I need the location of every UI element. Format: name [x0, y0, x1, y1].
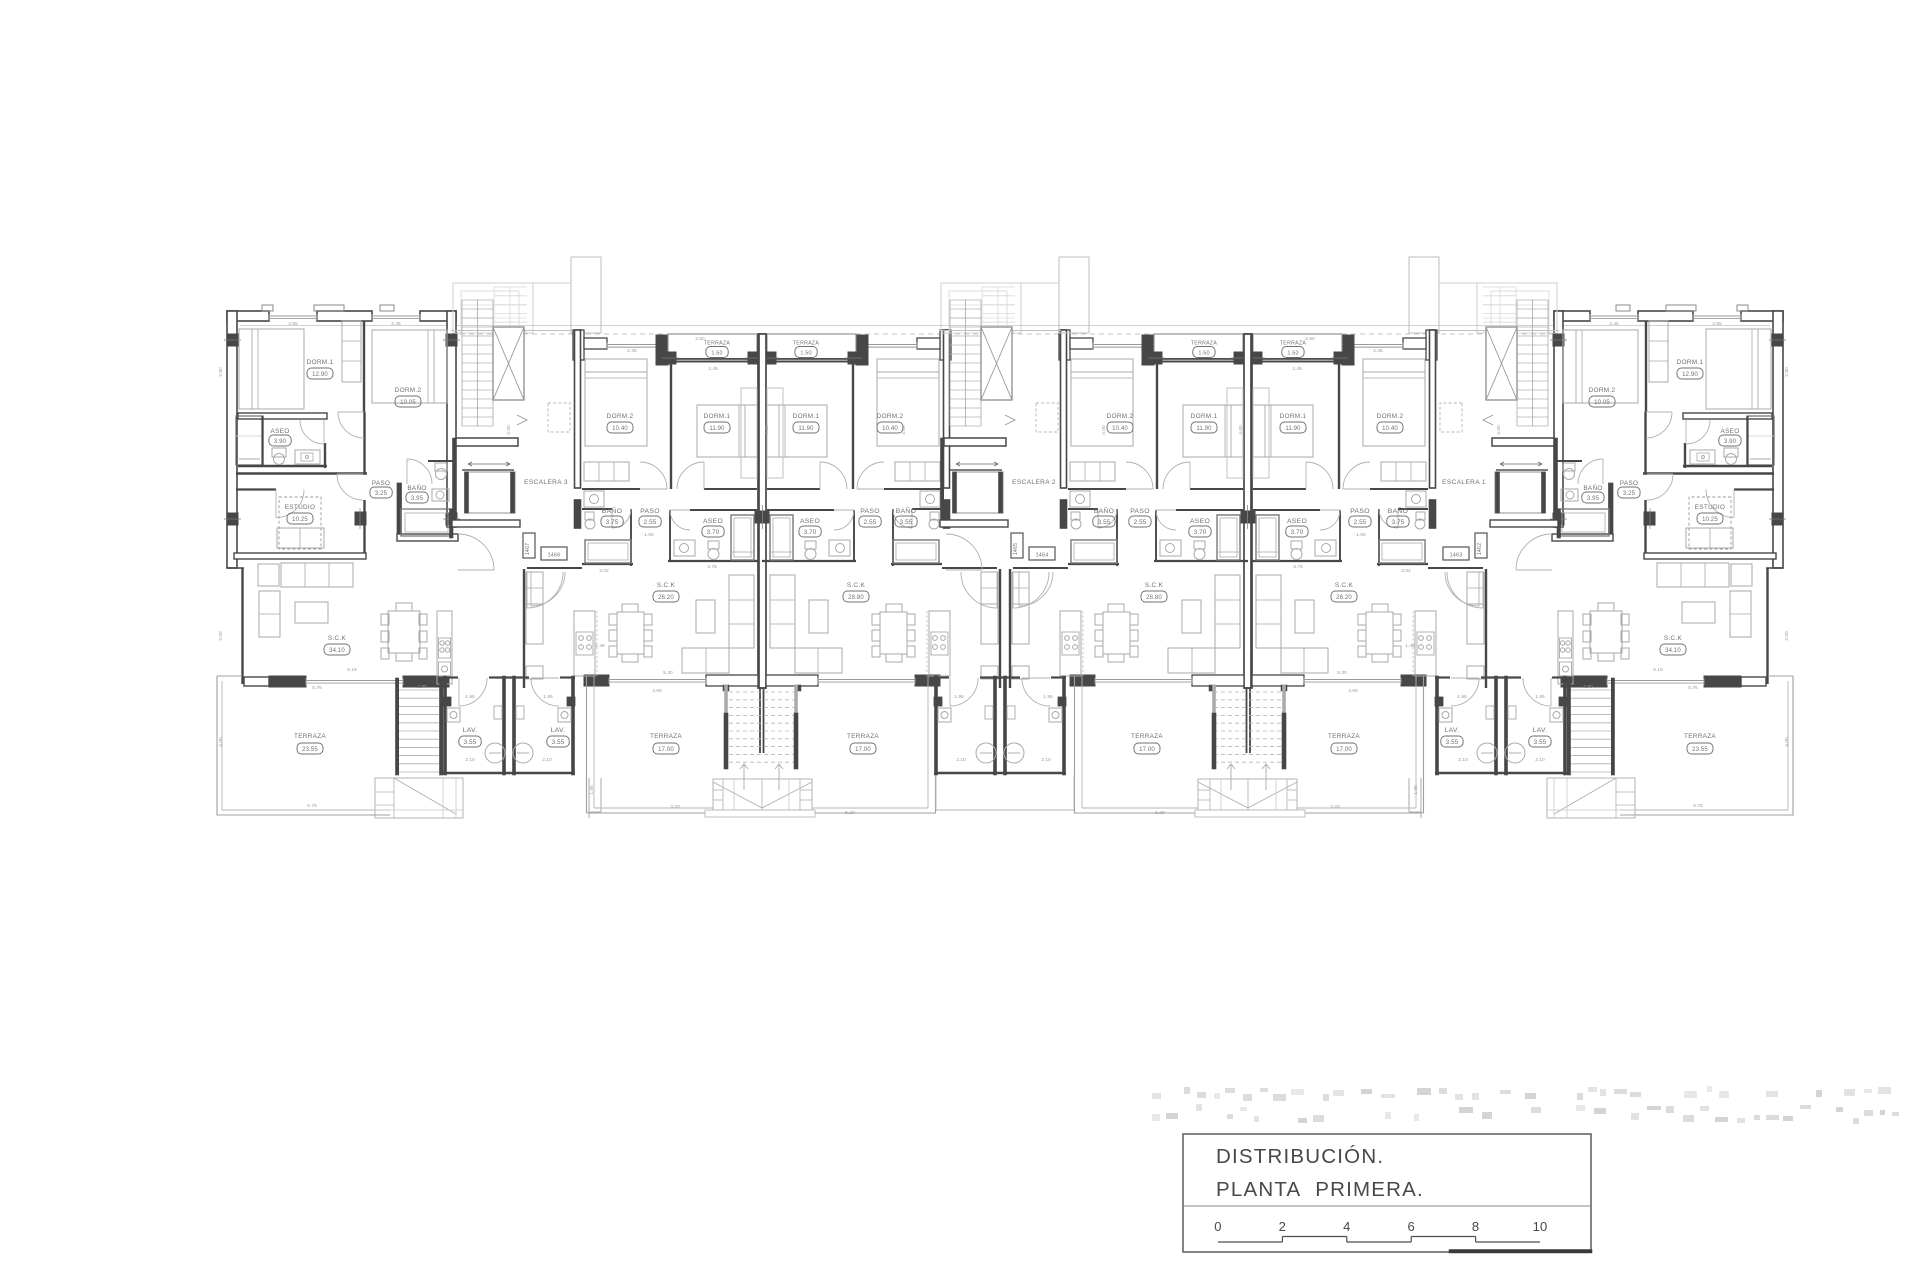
- svg-text:4: 4: [1343, 1219, 1350, 1234]
- svg-text:5.30: 5.30: [663, 670, 673, 676]
- svg-text:2.55: 2.55: [644, 519, 657, 526]
- svg-text:10.05: 10.05: [400, 400, 416, 406]
- svg-text:3.00: 3.00: [1784, 631, 1790, 641]
- svg-text:8: 8: [1472, 1219, 1479, 1234]
- svg-text:2.80: 2.80: [1784, 367, 1790, 377]
- svg-text:2: 2: [1279, 1219, 1286, 1234]
- svg-text:3.65: 3.65: [288, 321, 298, 327]
- svg-text:10.05: 10.05: [1594, 400, 1610, 406]
- svg-text:DORM.2: DORM.2: [395, 387, 422, 394]
- svg-text:34.10: 34.10: [329, 648, 345, 654]
- svg-text:ESTUDIO: ESTUDIO: [285, 504, 316, 511]
- svg-text:5.75: 5.75: [1688, 685, 1698, 691]
- svg-text:TERRAZA: TERRAZA: [1280, 341, 1307, 347]
- svg-text:3.95: 3.95: [411, 496, 424, 502]
- svg-text:4.00: 4.00: [1348, 688, 1358, 694]
- svg-text:1.05: 1.05: [589, 785, 595, 795]
- svg-text:TERRAZA: TERRAZA: [1684, 733, 1716, 740]
- svg-text:1.48: 1.48: [595, 643, 605, 649]
- svg-text:DORM.1: DORM.1: [307, 359, 334, 366]
- svg-text:0: 0: [1214, 1219, 1221, 1234]
- svg-text:1467: 1467: [525, 543, 531, 555]
- svg-text:BAÑO: BAÑO: [1094, 506, 1114, 515]
- svg-text:2.45: 2.45: [1292, 366, 1302, 372]
- svg-text:1.95: 1.95: [1535, 694, 1545, 700]
- svg-text:3.75: 3.75: [1392, 519, 1405, 526]
- svg-text:BAÑO: BAÑO: [602, 506, 622, 515]
- svg-text:11.90: 11.90: [709, 426, 725, 432]
- svg-text:BAÑO: BAÑO: [1583, 483, 1602, 492]
- svg-text:TERRAZA: TERRAZA: [1191, 341, 1218, 347]
- svg-text:6.19: 6.19: [347, 667, 357, 673]
- svg-text:PASO: PASO: [1620, 480, 1638, 487]
- svg-text:1465: 1465: [1013, 543, 1019, 555]
- svg-text:1.05: 1.05: [1413, 785, 1419, 795]
- svg-text:10.40: 10.40: [1382, 426, 1398, 432]
- svg-text:3.02: 3.02: [1401, 568, 1411, 574]
- svg-text:3.20: 3.20: [670, 804, 680, 810]
- svg-text:23.55: 23.55: [1692, 747, 1708, 753]
- svg-text:3.70: 3.70: [707, 529, 720, 536]
- svg-text:1.00: 1.00: [644, 532, 654, 538]
- svg-text:10.25: 10.25: [1702, 517, 1718, 523]
- svg-text:1464: 1464: [1036, 553, 1049, 559]
- svg-text:2.55: 2.55: [864, 519, 877, 526]
- svg-text:3.55: 3.55: [464, 739, 477, 746]
- svg-text:TERRAZA: TERRAZA: [294, 733, 326, 740]
- svg-text:PASO: PASO: [1350, 508, 1370, 515]
- svg-text:12.90: 12.90: [312, 372, 328, 378]
- svg-text:3.55: 3.55: [1534, 739, 1547, 746]
- svg-text:ESTUDIO: ESTUDIO: [1695, 504, 1726, 511]
- svg-text:5.75: 5.75: [312, 685, 322, 691]
- svg-text:2.55: 2.55: [1134, 519, 1147, 526]
- svg-text:4.00: 4.00: [218, 737, 224, 747]
- svg-text:23.55: 23.55: [302, 747, 318, 753]
- svg-text:1.00: 1.00: [1356, 532, 1366, 538]
- svg-text:2.55: 2.55: [1354, 519, 1367, 526]
- svg-text:DORM.2: DORM.2: [607, 413, 634, 420]
- svg-text:DORM.2: DORM.2: [1107, 413, 1134, 420]
- svg-text:34.10: 34.10: [1665, 648, 1681, 654]
- svg-text:ESCALERA 1: ESCALERA 1: [1442, 479, 1486, 486]
- svg-text:3.55: 3.55: [1098, 519, 1111, 526]
- svg-text:1.95: 1.95: [954, 694, 964, 700]
- svg-text:2.10: 2.10: [465, 757, 475, 763]
- svg-text:3.90: 3.90: [274, 439, 287, 445]
- svg-text:3.00: 3.00: [218, 631, 224, 641]
- svg-text:5.20: 5.20: [845, 810, 855, 816]
- svg-text:10.40: 10.40: [882, 426, 898, 432]
- svg-text:4.00: 4.00: [764, 425, 770, 435]
- svg-text:17.00: 17.00: [1139, 747, 1155, 753]
- svg-text:1.95: 1.95: [1457, 694, 1467, 700]
- svg-text:ASEO: ASEO: [703, 518, 723, 525]
- svg-text:3.90: 3.90: [1724, 439, 1737, 445]
- svg-text:1.95: 1.95: [465, 694, 475, 700]
- svg-text:3.55: 3.55: [900, 519, 913, 526]
- svg-text:ESCALERA 2: ESCALERA 2: [1012, 479, 1056, 486]
- svg-text:DORM.2: DORM.2: [877, 413, 904, 420]
- svg-text:3.65: 3.65: [1712, 321, 1722, 327]
- svg-text:2.10: 2.10: [956, 757, 966, 763]
- svg-text:LAV.: LAV.: [1445, 727, 1460, 734]
- svg-text:3.75: 3.75: [606, 519, 619, 526]
- svg-text:3.75: 3.75: [1293, 564, 1303, 570]
- svg-text:1.50: 1.50: [1198, 351, 1209, 357]
- svg-text:2.45: 2.45: [708, 366, 718, 372]
- svg-text:1.48: 1.48: [1405, 643, 1415, 649]
- svg-text:2.80: 2.80: [218, 367, 224, 377]
- svg-text:LAV.: LAV.: [551, 727, 566, 734]
- svg-text:4.00: 4.00: [1101, 425, 1107, 435]
- svg-text:TERRAZA: TERRAZA: [793, 341, 820, 347]
- svg-text:S.C.K: S.C.K: [328, 635, 347, 642]
- svg-text:PASO: PASO: [372, 480, 390, 487]
- svg-text:6.75: 6.75: [307, 803, 317, 809]
- svg-text:2.10: 2.10: [1535, 757, 1545, 763]
- svg-text:6: 6: [1407, 1219, 1414, 1234]
- svg-text:10.40: 10.40: [1112, 426, 1128, 432]
- svg-text:2.45: 2.45: [627, 348, 637, 354]
- svg-text:DORM.2: DORM.2: [1589, 387, 1616, 394]
- svg-text:TERRAZA: TERRAZA: [1328, 733, 1360, 740]
- svg-text:2.50: 2.50: [1305, 336, 1315, 342]
- svg-text:17.00: 17.00: [1336, 747, 1352, 753]
- svg-text:10.25: 10.25: [292, 517, 308, 523]
- svg-text:2.90: 2.90: [1583, 684, 1593, 690]
- svg-text:TERRAZA: TERRAZA: [1131, 733, 1163, 740]
- svg-text:DORM.1: DORM.1: [704, 413, 731, 420]
- svg-text:28.80: 28.80: [1146, 595, 1162, 601]
- svg-text:PLANTA PRIMERA.: PLANTA PRIMERA.: [1216, 1178, 1424, 1201]
- svg-text:10: 10: [1533, 1219, 1548, 1234]
- svg-text:3.02: 3.02: [599, 568, 609, 574]
- svg-text:LAV.: LAV.: [1533, 727, 1548, 734]
- svg-text:BAÑO: BAÑO: [1388, 506, 1408, 515]
- svg-text:12.90: 12.90: [1682, 372, 1698, 378]
- svg-text:3.70: 3.70: [804, 529, 817, 536]
- svg-text:PASO: PASO: [860, 508, 880, 515]
- svg-text:BAÑO: BAÑO: [896, 506, 916, 515]
- svg-text:2.10: 2.10: [1041, 757, 1051, 763]
- svg-text:LAV.: LAV.: [463, 727, 478, 734]
- svg-text:2.45: 2.45: [1609, 321, 1619, 327]
- svg-text:2.90: 2.90: [417, 684, 427, 690]
- svg-text:3.25: 3.25: [375, 491, 388, 497]
- svg-text:ESCALERA 3: ESCALERA 3: [524, 479, 568, 486]
- svg-text:ASEO: ASEO: [800, 518, 820, 525]
- svg-text:3.70: 3.70: [1194, 529, 1207, 536]
- svg-text:6.75: 6.75: [1693, 803, 1703, 809]
- svg-text:26.20: 26.20: [1336, 595, 1352, 601]
- svg-text:S.C.K: S.C.K: [1335, 582, 1354, 589]
- svg-text:5.20: 5.20: [1155, 810, 1165, 816]
- svg-text:2.45: 2.45: [1373, 348, 1383, 354]
- svg-text:2.50: 2.50: [695, 336, 705, 342]
- svg-text:4.00: 4.00: [1496, 425, 1502, 435]
- svg-text:4.00: 4.00: [652, 688, 662, 694]
- svg-text:26.20: 26.20: [658, 595, 674, 601]
- svg-text:1466: 1466: [548, 553, 561, 559]
- svg-text:3.25: 3.25: [1623, 491, 1636, 497]
- svg-text:BAÑO: BAÑO: [407, 483, 426, 492]
- svg-text:3.20: 3.20: [1330, 804, 1340, 810]
- svg-text:ASEO: ASEO: [1190, 518, 1210, 525]
- svg-text:1.95: 1.95: [1043, 694, 1053, 700]
- svg-text:S.C.K: S.C.K: [847, 582, 866, 589]
- svg-text:S.C.K: S.C.K: [657, 582, 676, 589]
- svg-text:4.00: 4.00: [1784, 737, 1790, 747]
- svg-text:DORM.1: DORM.1: [793, 413, 820, 420]
- svg-text:3.75: 3.75: [707, 564, 717, 570]
- svg-text:3.95: 3.95: [1587, 496, 1600, 502]
- svg-text:4.00: 4.00: [506, 425, 512, 435]
- svg-text:3.55: 3.55: [1446, 739, 1459, 746]
- svg-text:ASEO: ASEO: [1287, 518, 1307, 525]
- svg-text:1.50: 1.50: [1287, 351, 1298, 357]
- svg-text:6.19: 6.19: [1653, 667, 1663, 673]
- svg-text:ASEO: ASEO: [1721, 428, 1740, 435]
- svg-text:3.55: 3.55: [552, 739, 565, 746]
- svg-text:S.C.K: S.C.K: [1145, 582, 1164, 589]
- svg-text:2.10: 2.10: [1458, 757, 1468, 763]
- svg-text:DORM.1: DORM.1: [1191, 413, 1218, 420]
- svg-text:1.50: 1.50: [711, 351, 722, 357]
- svg-text:1462: 1462: [1477, 543, 1483, 555]
- svg-text:5.30: 5.30: [1337, 670, 1347, 676]
- svg-text:S.C.K: S.C.K: [1664, 635, 1683, 642]
- svg-text:1.95: 1.95: [543, 694, 553, 700]
- svg-text:11.90: 11.90: [1196, 426, 1212, 432]
- svg-text:2.10: 2.10: [542, 757, 552, 763]
- svg-text:11.90: 11.90: [798, 426, 814, 432]
- svg-text:4.00: 4.00: [901, 425, 907, 435]
- svg-text:11.90: 11.90: [1285, 426, 1301, 432]
- svg-text:TERRAZA: TERRAZA: [704, 341, 731, 347]
- svg-text:17.00: 17.00: [658, 747, 674, 753]
- svg-text:DISTRIBUCIÓN.: DISTRIBUCIÓN.: [1216, 1145, 1384, 1168]
- svg-text:TERRAZA: TERRAZA: [847, 733, 879, 740]
- svg-text:DORM.1: DORM.1: [1677, 359, 1704, 366]
- svg-text:10.40: 10.40: [612, 426, 628, 432]
- svg-text:PASO: PASO: [640, 508, 660, 515]
- svg-text:DORM.1: DORM.1: [1280, 413, 1307, 420]
- svg-text:TERRAZA: TERRAZA: [650, 733, 682, 740]
- svg-text:4.00: 4.00: [1238, 425, 1244, 435]
- svg-text:ASEO: ASEO: [271, 428, 290, 435]
- svg-text:3.70: 3.70: [1291, 529, 1304, 536]
- svg-text:17.00: 17.00: [855, 747, 871, 753]
- svg-text:DORM.2: DORM.2: [1377, 413, 1404, 420]
- svg-text:1463: 1463: [1450, 553, 1463, 559]
- svg-text:PASO: PASO: [1130, 508, 1150, 515]
- svg-text:2.45: 2.45: [391, 321, 401, 327]
- svg-text:1.50: 1.50: [800, 351, 811, 357]
- svg-text:28.80: 28.80: [848, 595, 864, 601]
